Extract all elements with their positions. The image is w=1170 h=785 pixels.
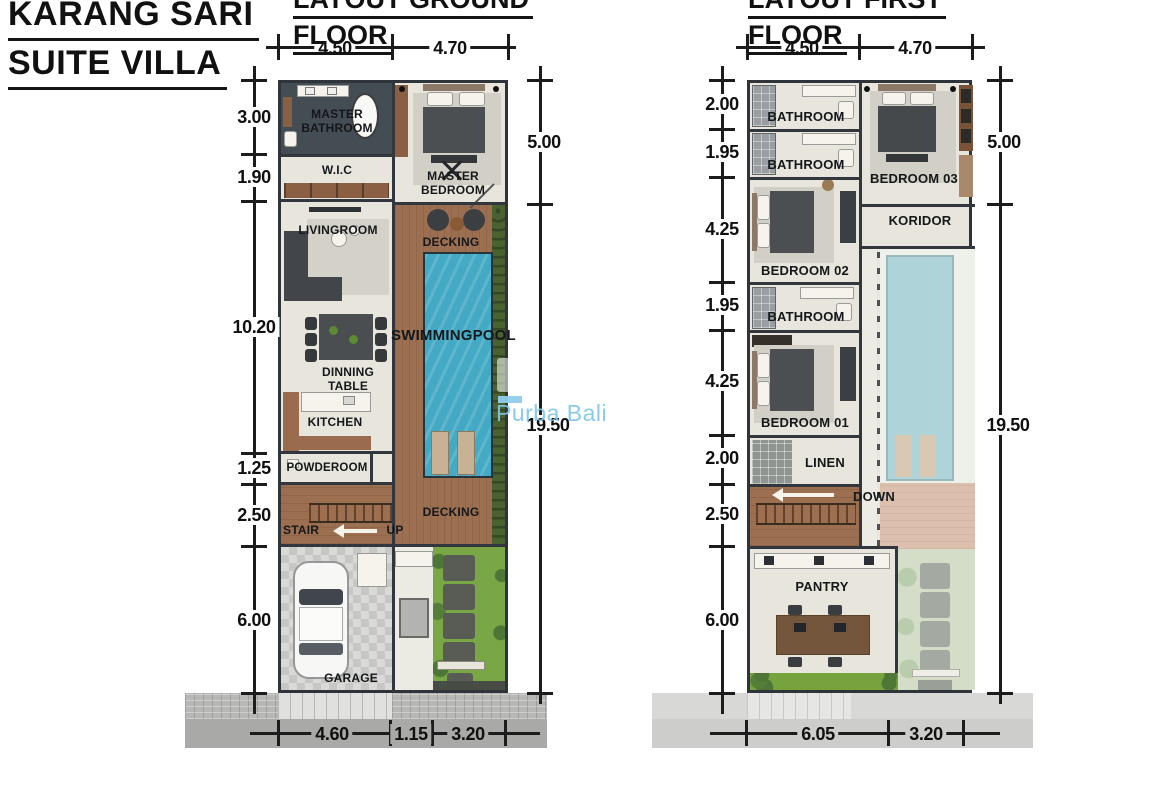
appliance-icon	[814, 556, 824, 565]
ground-floor-plan: MASTER BATHROOM W.I.C MASTER BEDROOM LIV…	[278, 80, 508, 693]
stair-treads	[756, 503, 856, 525]
pillow-icon	[910, 92, 934, 105]
room-label-linen: LINEN	[794, 455, 856, 470]
dim-tick	[241, 153, 267, 156]
bed-bench	[886, 154, 928, 162]
chair-icon	[305, 317, 317, 330]
dim-tick	[709, 329, 735, 332]
dim-tick	[709, 176, 735, 179]
dim-label: 3.00	[233, 107, 274, 127]
stepping-stone	[443, 584, 475, 610]
dim-label: 6.05	[797, 724, 838, 744]
bath-shelf	[283, 97, 292, 127]
car-roof	[299, 607, 343, 641]
dim-line	[999, 66, 1002, 704]
entry-canopy	[395, 551, 433, 567]
room-label-bathroom-2: BATHROOM	[758, 157, 854, 172]
stepping-stone	[443, 555, 475, 581]
plant-icon	[329, 326, 338, 335]
speaker-dot	[950, 86, 956, 92]
kitchen-island	[301, 392, 371, 412]
wall	[750, 546, 898, 549]
laptop-icon	[794, 623, 806, 632]
project-title: KARANG SARI SUITE VILLA	[8, 0, 259, 90]
down-arrow-icon	[782, 493, 834, 497]
ground-driveway	[278, 693, 392, 719]
wall	[859, 83, 862, 546]
pillow-icon	[757, 353, 770, 378]
car-rear-window	[299, 643, 343, 655]
wardrobe-door	[961, 109, 971, 123]
ground-floor-title-line2: FLOOR	[293, 19, 392, 55]
room-label-powderoom: POWDEROOM	[283, 462, 371, 476]
bed-duvet	[770, 191, 814, 253]
dim-label: 1.95	[701, 295, 742, 315]
pillow-icon	[757, 195, 770, 220]
wall	[895, 549, 898, 673]
stool-icon	[822, 179, 834, 191]
wall	[750, 484, 859, 487]
lounger-faded	[920, 435, 936, 477]
pillow-icon	[882, 92, 906, 105]
chair-icon	[375, 317, 387, 330]
plant-icon	[349, 335, 358, 344]
car-windshield	[299, 589, 343, 605]
garden-gate	[433, 681, 505, 690]
chair-icon	[828, 605, 842, 615]
dim-label: 1.95	[701, 142, 742, 162]
lounger-faded	[896, 435, 912, 477]
wall	[281, 451, 392, 454]
sofa	[284, 277, 342, 301]
pillow-icon	[757, 223, 770, 248]
floor-plan-sheet: KARANG SARI SUITE VILLA LAYOUT GROUND FL…	[0, 0, 1170, 785]
dim-tick	[709, 434, 735, 437]
dim-tick	[277, 34, 280, 60]
chair-icon	[305, 349, 317, 362]
dim-tick	[241, 692, 267, 695]
wall	[750, 177, 859, 180]
first-floor-plan: BATHROOM BATHROOM BEDROOM 03 KORIDOR BED…	[747, 80, 972, 693]
dim-tick	[887, 720, 890, 746]
dim-label: 6.00	[701, 610, 742, 630]
dim-label: 5.00	[983, 132, 1024, 152]
appliance-icon	[864, 556, 874, 565]
chair-icon	[305, 333, 317, 346]
dim-label: 6.00	[233, 610, 274, 630]
dim-label: 2.00	[701, 94, 742, 114]
dim-line	[539, 66, 542, 704]
dim-tick	[709, 545, 735, 548]
dining-table	[319, 314, 373, 360]
dim-label: 2.50	[701, 504, 742, 524]
dim-label: 1.15	[390, 724, 431, 744]
entry-mat	[399, 598, 429, 638]
bedroom-wardrobe	[395, 85, 408, 157]
front-grass	[750, 673, 898, 690]
stair-treads	[309, 503, 392, 523]
sink-icon	[343, 396, 355, 405]
wall	[859, 246, 975, 249]
room-label-wic: W.I.C	[293, 163, 381, 177]
room-label-bathroom-1: BATHROOM	[758, 109, 854, 124]
dim-label: 2.50	[233, 505, 274, 525]
wall	[281, 154, 392, 157]
wall	[281, 544, 395, 547]
room-label-pantry: PANTRY	[774, 579, 870, 594]
stepping-stone-faded	[920, 621, 950, 647]
dim-tick	[987, 79, 1013, 82]
lounger-icon	[431, 431, 449, 475]
dim-tick	[527, 692, 553, 695]
dim-tick	[527, 79, 553, 82]
dim-tick	[241, 200, 267, 203]
garage-storage	[357, 553, 387, 587]
dim-tick	[241, 483, 267, 486]
dim-label: 4.60	[311, 724, 352, 744]
dim-line	[710, 732, 1000, 735]
stepping-stone	[443, 613, 475, 639]
dim-tick	[504, 720, 507, 746]
wall	[750, 435, 859, 438]
first-floor-title-line2: FLOOR	[748, 19, 847, 55]
chair-icon	[375, 349, 387, 362]
garden-gate-faded	[918, 680, 952, 690]
ground-floor-title-line1: LAYOUT GROUND	[293, 0, 533, 19]
chair-icon	[375, 333, 387, 346]
room-label-decking-bottom: DECKING	[409, 505, 493, 519]
wall	[750, 330, 859, 333]
bed-duvet	[423, 107, 485, 153]
dim-tick	[987, 203, 1013, 206]
room-label-bedroom-03: BEDROOM 03	[864, 171, 964, 186]
room-label-livingroom: LIVINGROOM	[293, 223, 383, 237]
room-label-dinning-table: DINNING TABLE	[303, 365, 393, 393]
bed-duvet	[878, 106, 936, 152]
kitchen-counter	[283, 436, 371, 450]
dim-label: 4.25	[701, 219, 742, 239]
dim-tick	[241, 545, 267, 548]
wall	[750, 282, 859, 285]
dim-label: 3.20	[905, 724, 946, 744]
speaker-dot	[864, 86, 870, 92]
beanbag-icon	[427, 209, 449, 231]
dim-tick	[962, 720, 965, 746]
room-label-bathroom-3: BATHROOM	[758, 309, 854, 324]
room-label-swimmingpool: SWIMMINGPOOL	[391, 327, 507, 345]
dim-tick	[971, 34, 974, 60]
vanity-sink	[802, 133, 856, 145]
dim-tick	[527, 203, 553, 206]
chair-icon	[828, 657, 842, 667]
dim-label: 10.20	[228, 317, 279, 337]
desk	[840, 191, 856, 243]
bed-bench	[431, 155, 477, 163]
room-label-master-bedroom: MASTER BEDROOM	[415, 169, 491, 197]
beanbag-icon	[463, 209, 485, 231]
desk	[840, 347, 856, 401]
wall	[281, 199, 392, 202]
dim-tick	[709, 79, 735, 82]
wardrobe	[284, 183, 389, 198]
dim-tick	[745, 720, 748, 746]
linen-tile	[752, 440, 792, 484]
pillow-icon	[757, 381, 770, 406]
ground-floor-title: LAYOUT GROUND FLOOR	[293, 0, 533, 55]
dim-label: 4.25	[701, 371, 742, 391]
dim-label: 2.00	[701, 448, 742, 468]
bed-headboard	[878, 84, 936, 91]
speaker-dot	[493, 86, 499, 92]
dim-tick	[709, 483, 735, 486]
room-label-bedroom-01: BEDROOM 01	[756, 415, 854, 430]
room-label-stair: STAIR	[283, 523, 329, 537]
chair-icon	[788, 657, 802, 667]
wardrobe-door	[961, 89, 971, 103]
dim-label: 3.20	[447, 724, 488, 744]
dim-label: 1.90	[233, 167, 274, 187]
wall	[395, 544, 505, 547]
tv-console	[309, 207, 361, 212]
watermark-logo	[497, 358, 513, 392]
up-arrow-icon	[343, 529, 377, 533]
pillow-icon	[459, 92, 485, 106]
vanity-sink	[800, 287, 854, 299]
bed-duvet	[770, 349, 814, 411]
dim-tick	[709, 128, 735, 131]
project-title-line1: KARANG SARI	[8, 0, 259, 41]
sink-icon	[327, 87, 337, 95]
room-label-master-bathroom: MASTER BATHROOM	[295, 107, 379, 135]
pantry-table	[776, 615, 870, 655]
room-label-up: UP	[381, 523, 409, 537]
room-label-garage: GARAGE	[313, 671, 389, 685]
dim-tick	[709, 692, 735, 695]
speaker-dot	[399, 86, 405, 92]
wall	[395, 202, 505, 205]
room-label-decking-top: DECKING	[409, 235, 493, 249]
vanity-sink	[802, 85, 856, 97]
stepping-stone-faded	[920, 592, 950, 618]
wall	[281, 482, 392, 485]
first-floor-title-line1: LAYOUT FIRST	[748, 0, 946, 19]
dim-tick	[241, 452, 267, 455]
dim-label: 19.50	[982, 415, 1033, 435]
first-floor-title: LAYOUT FIRST FLOOR	[748, 0, 946, 55]
laptop-icon	[834, 623, 846, 632]
dim-tick	[709, 281, 735, 284]
bed-headboard	[423, 84, 485, 91]
lounger-icon	[457, 431, 475, 475]
garden-bench	[437, 661, 485, 670]
dim-tick	[987, 692, 1013, 695]
room-label-down: DOWN	[846, 489, 902, 504]
room-label-kitchen: KITCHEN	[299, 415, 371, 429]
chair-icon	[788, 605, 802, 615]
wall	[750, 129, 859, 132]
sink-icon	[305, 87, 315, 95]
garden-bench-faded	[912, 669, 960, 677]
room-label-koridor: KORIDOR	[870, 213, 970, 228]
appliance-icon	[764, 556, 774, 565]
dim-label: 1.25	[233, 458, 274, 478]
dim-label: 5.00	[523, 132, 564, 152]
room-label-bedroom-02: BEDROOM 02	[756, 263, 854, 278]
project-title-line2: SUITE VILLA	[8, 41, 227, 90]
wardrobe-door	[961, 129, 971, 143]
watermark-text: Purba Bali	[496, 400, 607, 427]
deck-table-icon	[450, 217, 464, 231]
pillow-icon	[427, 92, 453, 106]
stepping-stone-faded	[920, 563, 950, 589]
first-driveway	[747, 693, 851, 719]
wall	[859, 204, 975, 207]
dim-tick	[277, 720, 280, 746]
